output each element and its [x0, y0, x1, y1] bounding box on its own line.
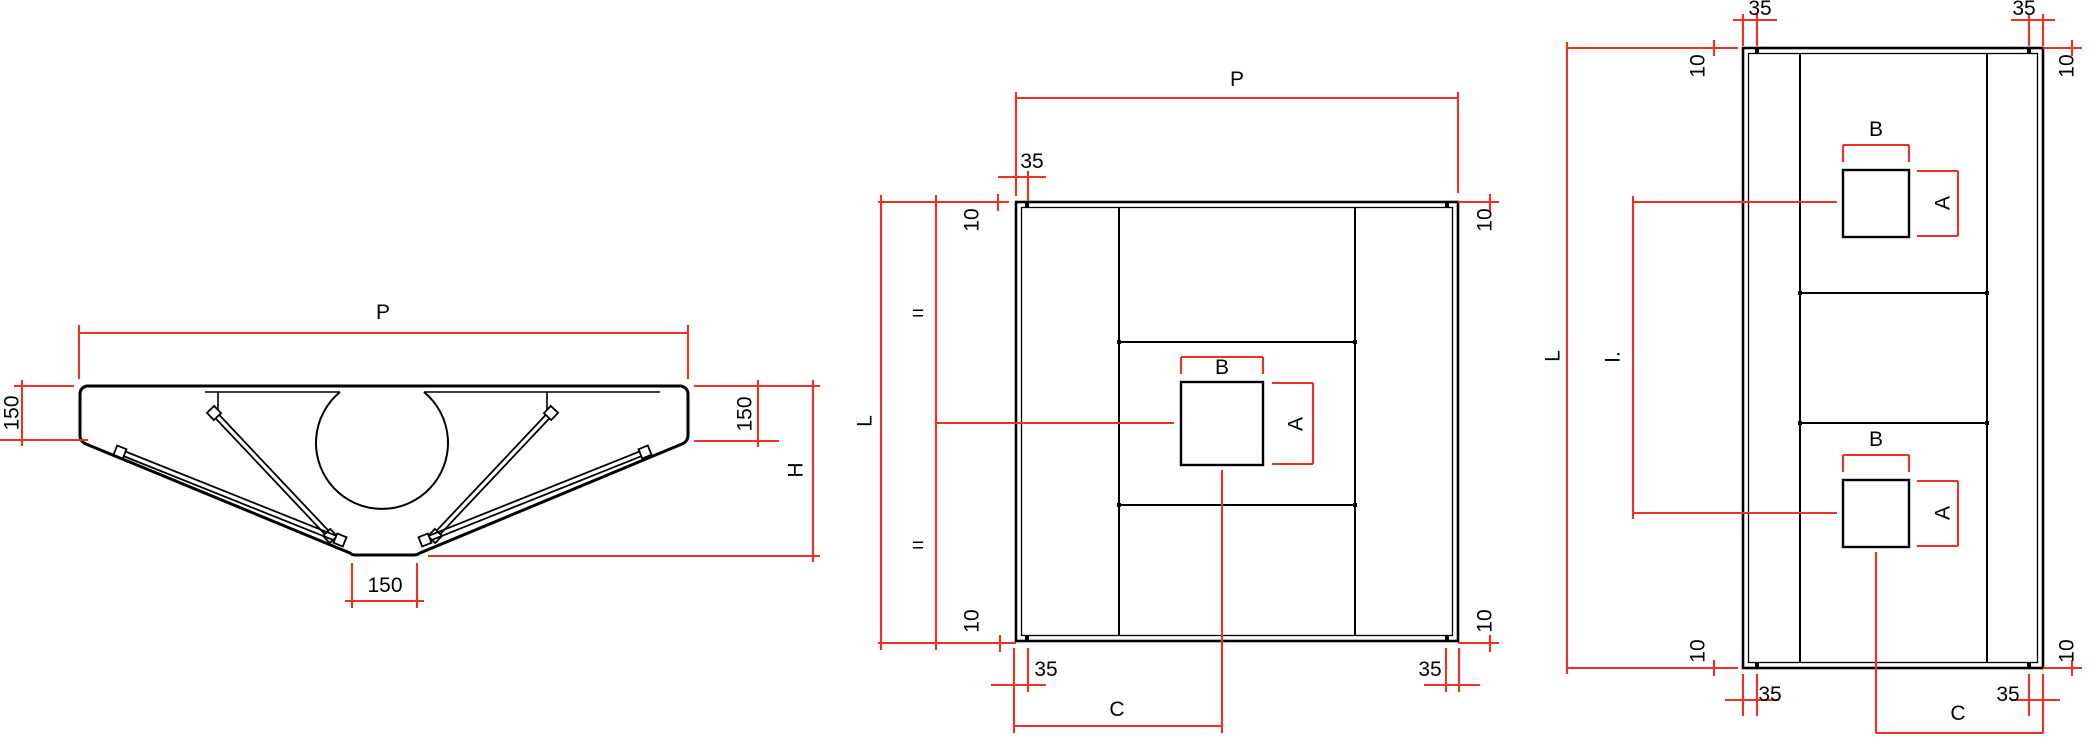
dim-a-plan: A [1284, 417, 1307, 431]
dim-35-plan-top-left: 35 [1020, 150, 1043, 173]
dim-h-front: H [784, 462, 807, 477]
junction-dot [1353, 340, 1357, 344]
junction-dot [1117, 503, 1121, 507]
dim-10-plan-top-left: 10 [960, 208, 983, 231]
dim-l-plan2: L [1541, 350, 1564, 362]
technical-drawing-canvas: P150150H150P351010L==BA10103535C35351010… [0, 0, 2094, 737]
dim-35-plan-bottom-left: 35 [1034, 658, 1057, 681]
duct-collar-arc [316, 392, 448, 509]
dim-p-plan: P [1230, 68, 1244, 91]
dim-10-plan2-top-left: 10 [1686, 54, 1709, 77]
dimension-line-layer [0, 14, 2082, 733]
junction-dot [1025, 636, 1029, 640]
dim-10-plan2-bottom-right: 10 [2055, 639, 2078, 662]
dim-150-front-left: 150 [0, 395, 23, 430]
dim-b-plan2-upper: B [1869, 118, 1883, 141]
dim-c-plan: C [1109, 698, 1124, 721]
junction-dot [2027, 663, 2031, 667]
dim-b-plan2-lower: B [1869, 428, 1883, 451]
filter-shallow-right [424, 450, 644, 538]
plan-duct-square [1181, 382, 1263, 465]
dim-10-plan-bottom-left: 10 [960, 609, 983, 632]
junction-dot [1985, 291, 1989, 295]
dim-35-plan2-top-left: 35 [1748, 0, 1771, 20]
junction-dot [1445, 636, 1449, 640]
junction-dot [1798, 421, 1802, 425]
dim-eq-plan-upper: = [912, 302, 924, 325]
filter-shallow-right [426, 454, 646, 542]
junction-dot [1117, 340, 1121, 344]
dim-a-plan2-lower: A [1931, 506, 1954, 520]
junction-dot [1445, 203, 1449, 207]
filter-steep-right-end-cap [544, 406, 558, 420]
plan-hood-outer [1016, 202, 1458, 641]
junction-dot [1798, 291, 1802, 295]
junction-dot [1755, 663, 1759, 667]
dim-35-plan-bottom-right: 35 [1418, 658, 1441, 681]
dim-150-front-right: 150 [733, 396, 756, 431]
junction-dot [1025, 203, 1029, 207]
dim-35-plan2-bottom-right: 35 [1996, 683, 2019, 706]
dim-10-plan2-bottom-left: 10 [1686, 639, 1709, 662]
junction-dot [1985, 421, 1989, 425]
dimension-label-layer: P150150H150P351010L==BA10103535C35351010… [0, 0, 2078, 725]
dim-35-plan2-bottom-left: 35 [1758, 683, 1781, 706]
filter-steep-left-end-cap [207, 406, 221, 420]
plan-hood-inner-flange [1022, 208, 1453, 636]
dim-i-plan2: I. [1601, 351, 1624, 363]
dim-p-front: P [376, 301, 390, 324]
dim-b-plan: B [1215, 356, 1229, 379]
junction-dot [2027, 49, 2031, 53]
dim-a-plan2-upper: A [1931, 196, 1954, 210]
dim-c-plan2: C [1950, 702, 1965, 725]
junction-dot [1353, 503, 1357, 507]
dim-10-plan-top-right: 10 [1473, 208, 1496, 231]
junction-dot [1755, 49, 1759, 53]
dim-10-plan2-top-right: 10 [2055, 54, 2078, 77]
filter-shallow-left [119, 454, 339, 542]
dim-35-plan2-top-right: 35 [2012, 0, 2035, 20]
dim-eq-plan-lower: = [912, 534, 924, 557]
dim-150-front-bottom: 150 [367, 574, 402, 597]
dim-10-plan-bottom-right: 10 [1473, 609, 1496, 632]
dim-l-plan: L [853, 415, 876, 427]
plan2-duct-square-upper [1843, 170, 1909, 237]
plan2-hood-outer [1743, 48, 2043, 668]
plan2-duct-square-lower [1843, 480, 1909, 547]
hood-dimension-drawing-svg: P150150H150P351010L==BA10103535C35351010… [0, 0, 2094, 737]
filter-steep-right [437, 415, 553, 538]
filter-shallow-left [121, 450, 341, 538]
